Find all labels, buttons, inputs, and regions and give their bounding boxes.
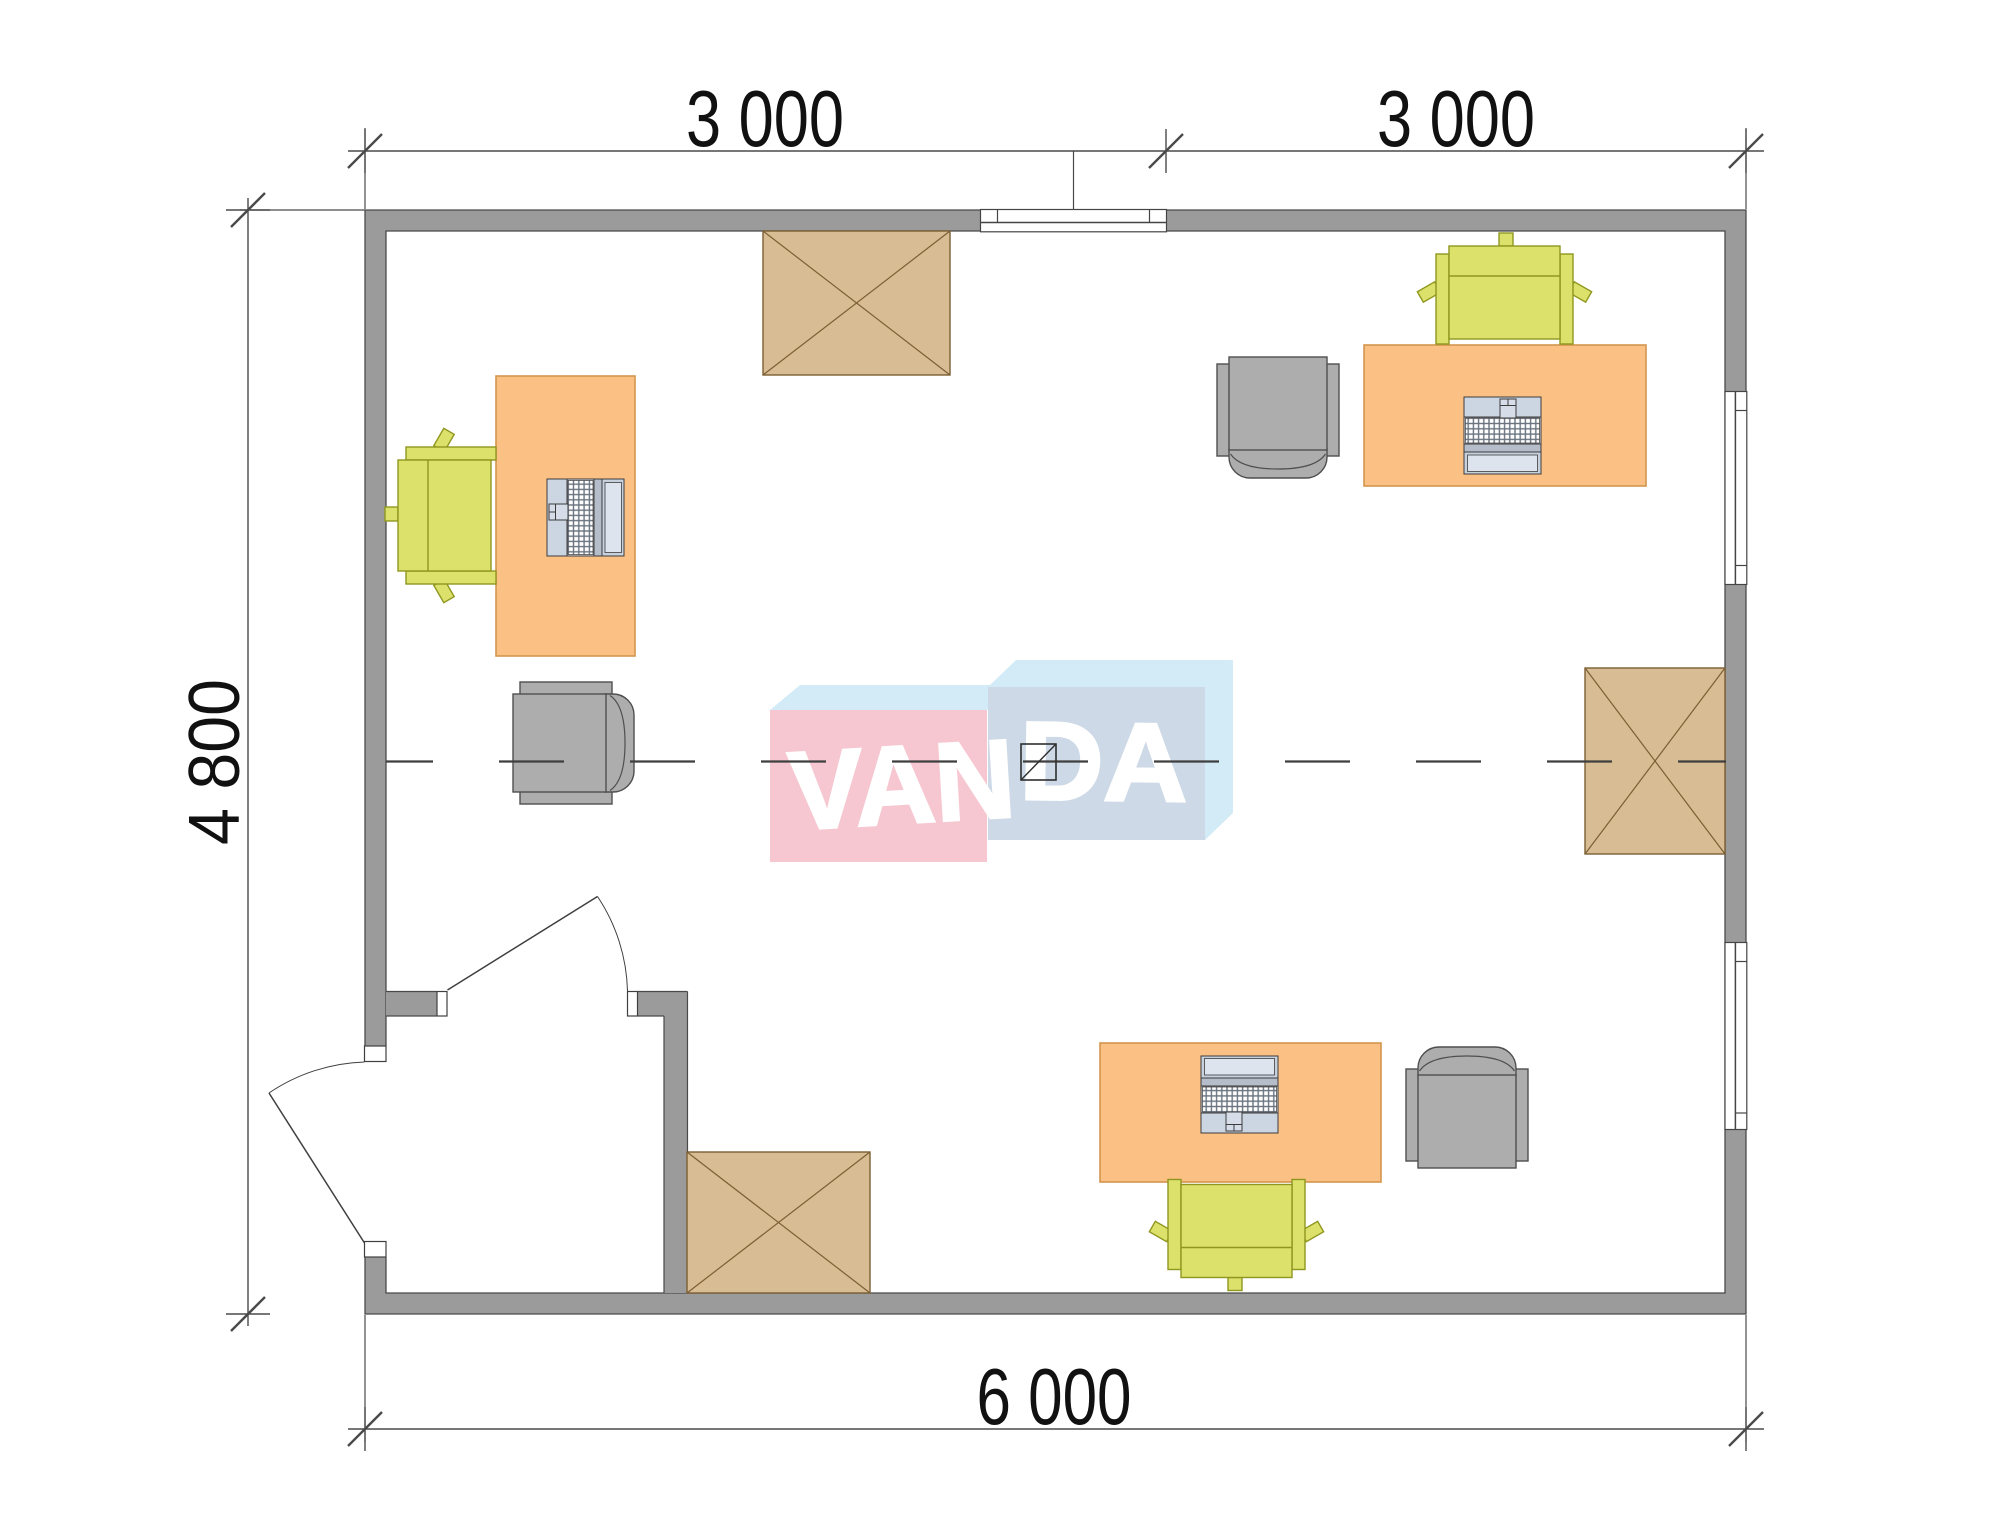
- svg-text:VAN: VAN: [785, 716, 1018, 853]
- svg-text:3 000: 3 000: [686, 74, 844, 163]
- svg-text:4 800: 4 800: [175, 679, 255, 845]
- svg-text:6 000: 6 000: [977, 1352, 1132, 1441]
- svg-text:3 000: 3 000: [1377, 74, 1535, 163]
